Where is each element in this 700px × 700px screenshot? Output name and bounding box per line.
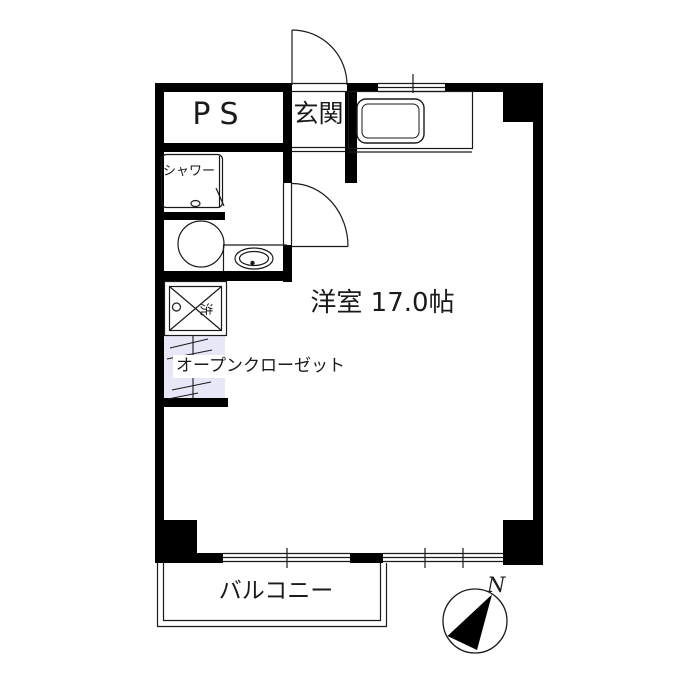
- balcony-label: バルコニー: [170, 579, 382, 604]
- floor-plan: PS 玄関 シャワー 洋室 17.0帖 オープンクローゼット バルコニー N 洗: [0, 0, 700, 700]
- washer-pan: [165, 282, 227, 336]
- main-room-label: 洋室 17.0帖: [295, 289, 470, 318]
- toilet: [178, 221, 224, 267]
- open-closet-label: オープンクローゼット: [173, 355, 348, 378]
- window-top: [378, 74, 445, 93]
- entrance-door: [292, 30, 347, 92]
- compass-icon: [443, 589, 507, 653]
- bathtub: [357, 99, 424, 143]
- shower-stall: [162, 155, 225, 208]
- genkan-step-line: [292, 148, 345, 152]
- shower-label: シャワー: [163, 165, 221, 179]
- sink-vanity: [223, 245, 287, 271]
- genkan-label: 玄関: [290, 100, 347, 128]
- window-bottom-left: [223, 548, 350, 568]
- washroom-door: [284, 183, 349, 247]
- north-label: N: [487, 574, 505, 597]
- window-bottom-right: [383, 548, 503, 568]
- washer-symbol-label: 洗: [197, 303, 211, 316]
- ps-label: PS: [163, 98, 277, 131]
